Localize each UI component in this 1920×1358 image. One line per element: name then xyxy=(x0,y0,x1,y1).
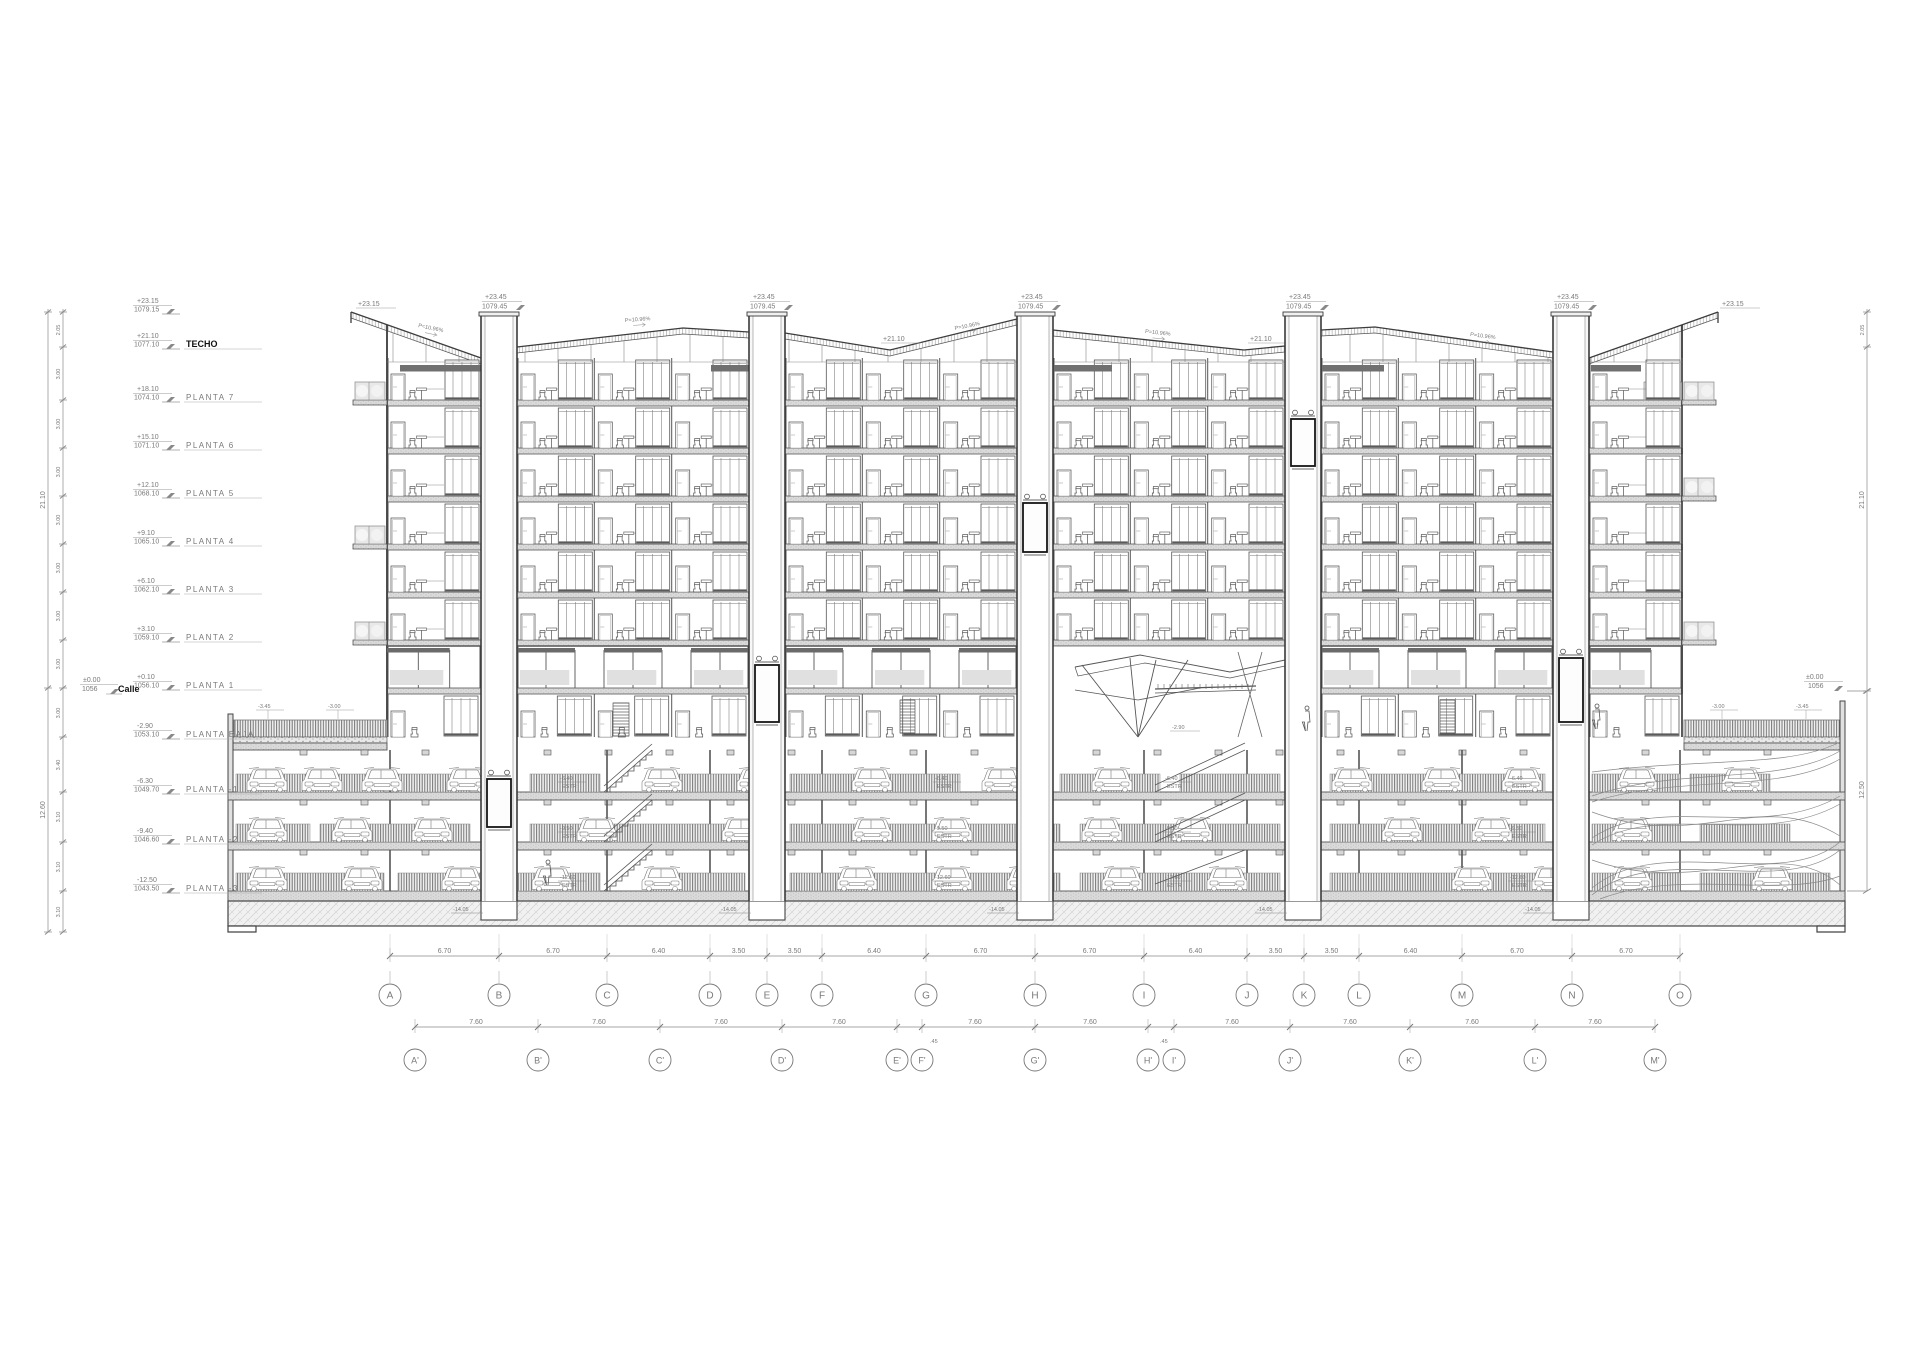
svg-text:+21.10: +21.10 xyxy=(883,336,905,343)
svg-text:3.00: 3.00 xyxy=(56,467,62,478)
svg-text:N: N xyxy=(1568,991,1575,1002)
svg-text:PLANTA -3: PLANTA -3 xyxy=(186,884,239,893)
svg-text:-12.60: -12.60 xyxy=(560,875,576,881)
svg-text:Calle: Calle xyxy=(118,684,140,694)
svg-text:1079.15: 1079.15 xyxy=(134,307,159,314)
svg-text:PLANTA 6: PLANTA 6 xyxy=(186,441,235,450)
svg-text:3.10: 3.10 xyxy=(56,862,62,873)
svg-text:ESTR: ESTR xyxy=(1512,834,1527,840)
svg-text:-14.05: -14.05 xyxy=(1525,907,1541,913)
svg-text:-12.50: -12.50 xyxy=(137,877,157,884)
svg-text:6.70: 6.70 xyxy=(974,948,988,955)
svg-text:1079.45: 1079.45 xyxy=(750,304,775,311)
svg-text:+23.45: +23.45 xyxy=(1557,294,1579,301)
svg-text:L': L' xyxy=(1532,1056,1539,1066)
svg-text:G': G' xyxy=(1031,1056,1040,1066)
svg-text:M': M' xyxy=(1650,1056,1659,1066)
svg-text:-12.60: -12.60 xyxy=(935,875,951,881)
svg-text:K: K xyxy=(1301,991,1308,1002)
svg-text:1043.50: 1043.50 xyxy=(134,886,159,893)
svg-text:F: F xyxy=(819,991,825,1002)
svg-text:-3.45: -3.45 xyxy=(1796,704,1809,710)
svg-text:1068.10: 1068.10 xyxy=(134,491,159,498)
svg-text:7.60: 7.60 xyxy=(1465,1019,1479,1026)
svg-text:E': E' xyxy=(893,1056,901,1066)
svg-text:PLANTA BAJA: PLANTA BAJA xyxy=(186,730,255,739)
svg-text:1079.45: 1079.45 xyxy=(1554,304,1579,311)
svg-text:7.60: 7.60 xyxy=(1083,1019,1097,1026)
svg-text:1056: 1056 xyxy=(82,686,98,693)
svg-text:-12.60: -12.60 xyxy=(1510,875,1526,881)
svg-text:TECHO: TECHO xyxy=(186,339,218,349)
svg-text:+23.45: +23.45 xyxy=(485,294,507,301)
svg-text:1056: 1056 xyxy=(1808,683,1824,690)
svg-text:ESTR: ESTR xyxy=(1512,784,1527,790)
svg-text:I: I xyxy=(1143,991,1146,1002)
svg-text:3.50: 3.50 xyxy=(1325,948,1339,955)
svg-text:+23.45: +23.45 xyxy=(1021,294,1043,301)
svg-text:-6.40: -6.40 xyxy=(560,776,573,782)
svg-text:L: L xyxy=(1356,991,1362,1002)
svg-text:3.00: 3.00 xyxy=(56,611,62,622)
svg-text:A': A' xyxy=(411,1056,419,1066)
svg-text:6.40: 6.40 xyxy=(867,948,881,955)
svg-text:M: M xyxy=(1458,991,1466,1002)
svg-text:1062.10: 1062.10 xyxy=(134,587,159,594)
svg-text:+6.10: +6.10 xyxy=(137,578,155,585)
svg-text:2.05: 2.05 xyxy=(56,325,62,336)
svg-text:6.40: 6.40 xyxy=(1404,948,1418,955)
svg-text:+0.10: +0.10 xyxy=(137,674,155,681)
svg-text:PLANTA 4: PLANTA 4 xyxy=(186,537,235,546)
svg-text:3.00: 3.00 xyxy=(56,708,62,719)
svg-text:+23.15: +23.15 xyxy=(137,298,159,305)
svg-text:6.70: 6.70 xyxy=(1619,948,1633,955)
svg-text:+23.45: +23.45 xyxy=(1289,294,1311,301)
svg-text:ESTR: ESTR xyxy=(1512,883,1527,889)
svg-text:J: J xyxy=(1245,991,1250,1002)
svg-text:21.10: 21.10 xyxy=(40,491,47,509)
svg-text:I': I' xyxy=(1172,1056,1177,1066)
svg-text:-6.40: -6.40 xyxy=(1510,776,1523,782)
svg-text:1059.10: 1059.10 xyxy=(134,635,159,642)
svg-text:F': F' xyxy=(918,1056,925,1066)
svg-text:-14.05: -14.05 xyxy=(989,907,1005,913)
svg-text:PLANTA 3: PLANTA 3 xyxy=(186,585,235,594)
svg-text:-6.40: -6.40 xyxy=(935,776,948,782)
svg-text:6.70: 6.70 xyxy=(1083,948,1097,955)
svg-text:-3.00: -3.00 xyxy=(1712,704,1725,710)
svg-text:B: B xyxy=(496,991,503,1002)
svg-text:1074.10: 1074.10 xyxy=(134,395,159,402)
svg-text:B': B' xyxy=(534,1056,542,1066)
svg-text:-9.50: -9.50 xyxy=(1510,826,1523,832)
svg-text:A: A xyxy=(387,991,394,1002)
svg-text:O: O xyxy=(1676,991,1684,1002)
svg-text:12.50: 12.50 xyxy=(1859,781,1866,799)
svg-text:3.10: 3.10 xyxy=(56,907,62,918)
svg-text:ESTR: ESTR xyxy=(1167,883,1182,889)
svg-text:+15.10: +15.10 xyxy=(137,434,159,441)
svg-text:G: G xyxy=(922,991,930,1002)
svg-text:-6.40: -6.40 xyxy=(1165,776,1178,782)
svg-text:1049.70: 1049.70 xyxy=(134,787,159,794)
svg-text:6.70: 6.70 xyxy=(438,948,452,955)
svg-text:3.00: 3.00 xyxy=(56,369,62,380)
svg-text:+9.10: +9.10 xyxy=(137,530,155,537)
svg-text:PLANTA -2: PLANTA -2 xyxy=(186,835,239,844)
svg-text:3.50: 3.50 xyxy=(788,948,802,955)
svg-text:-3.45: -3.45 xyxy=(258,704,271,710)
svg-text:-9.40: -9.40 xyxy=(137,828,153,835)
svg-text:+21.10: +21.10 xyxy=(137,333,159,340)
svg-text:PLANTA -1: PLANTA -1 xyxy=(186,785,239,794)
svg-text:-3.00: -3.00 xyxy=(328,704,341,710)
svg-text:ESTR: ESTR xyxy=(562,883,577,889)
svg-text:+12.10: +12.10 xyxy=(137,482,159,489)
svg-text:3.50: 3.50 xyxy=(732,948,746,955)
svg-text:7.60: 7.60 xyxy=(1343,1019,1357,1026)
svg-text:1065.10: 1065.10 xyxy=(134,539,159,546)
svg-text:±0.00: ±0.00 xyxy=(83,677,101,684)
svg-text:-12.60: -12.60 xyxy=(1165,875,1181,881)
svg-text:+23.45: +23.45 xyxy=(753,294,775,301)
svg-text:2.05: 2.05 xyxy=(1860,325,1866,336)
svg-text:ESTR: ESTR xyxy=(937,784,952,790)
svg-text:ESTR: ESTR xyxy=(1167,784,1182,790)
svg-text:J': J' xyxy=(1287,1056,1294,1066)
svg-text:7.60: 7.60 xyxy=(968,1019,982,1026)
svg-text:1071.10: 1071.10 xyxy=(134,443,159,450)
svg-text:3.10: 3.10 xyxy=(56,812,62,823)
svg-text:6.40: 6.40 xyxy=(1189,948,1203,955)
svg-text:7.60: 7.60 xyxy=(469,1019,483,1026)
svg-text:1079.45: 1079.45 xyxy=(1286,304,1311,311)
svg-text:7.60: 7.60 xyxy=(832,1019,846,1026)
svg-text:3.00: 3.00 xyxy=(56,659,62,670)
svg-text:+21.10: +21.10 xyxy=(1250,336,1272,343)
svg-text:12.60: 12.60 xyxy=(40,801,47,819)
svg-text:+3.10: +3.10 xyxy=(137,626,155,633)
svg-text:1077.10: 1077.10 xyxy=(134,342,159,349)
svg-text:PLANTA 5: PLANTA 5 xyxy=(186,489,235,498)
svg-text:+18.10: +18.10 xyxy=(137,386,159,393)
svg-text:PLANTA 7: PLANTA 7 xyxy=(186,393,235,402)
svg-text:6.70: 6.70 xyxy=(546,948,560,955)
svg-text:-9.50: -9.50 xyxy=(560,826,573,832)
svg-text:1079.45: 1079.45 xyxy=(482,304,507,311)
svg-text:.45: .45 xyxy=(930,1039,938,1045)
svg-text:21.10: 21.10 xyxy=(1859,491,1866,509)
svg-text:3.40: 3.40 xyxy=(56,760,62,771)
svg-text:-6.30: -6.30 xyxy=(137,778,153,785)
svg-text:ESTR: ESTR xyxy=(937,834,952,840)
svg-text:D: D xyxy=(706,991,713,1002)
svg-text:7.60: 7.60 xyxy=(592,1019,606,1026)
svg-text:K': K' xyxy=(1406,1056,1414,1066)
svg-text:7.60: 7.60 xyxy=(1225,1019,1239,1026)
svg-text:-14.05: -14.05 xyxy=(1257,907,1273,913)
svg-text:ESTR: ESTR xyxy=(562,834,577,840)
svg-text:1046.60: 1046.60 xyxy=(134,837,159,844)
svg-text:D': D' xyxy=(778,1056,786,1066)
svg-text:6.70: 6.70 xyxy=(1510,948,1524,955)
svg-text:1079.45: 1079.45 xyxy=(1018,304,1043,311)
svg-text:H': H' xyxy=(1144,1056,1152,1066)
svg-text:-9.50: -9.50 xyxy=(1165,826,1178,832)
svg-text:PLANTA 1: PLANTA 1 xyxy=(186,681,235,690)
svg-text:E: E xyxy=(764,991,771,1002)
svg-text:-2.90: -2.90 xyxy=(1172,725,1185,731)
svg-text:ESTR: ESTR xyxy=(1167,834,1182,840)
svg-text:PLANTA 2: PLANTA 2 xyxy=(186,633,235,642)
svg-text:7.60: 7.60 xyxy=(1588,1019,1602,1026)
svg-text:+23.15: +23.15 xyxy=(358,301,380,308)
svg-text:±0.00: ±0.00 xyxy=(1806,674,1824,681)
svg-text:3.00: 3.00 xyxy=(56,515,62,526)
svg-text:7.60: 7.60 xyxy=(714,1019,728,1026)
svg-text:-9.50: -9.50 xyxy=(935,826,948,832)
svg-text:3.00: 3.00 xyxy=(56,563,62,574)
svg-text:3.50: 3.50 xyxy=(1269,948,1283,955)
svg-text:ESTR: ESTR xyxy=(562,784,577,790)
svg-text:+23.15: +23.15 xyxy=(1722,301,1744,308)
svg-text:-14.05: -14.05 xyxy=(453,907,469,913)
svg-text:6.40: 6.40 xyxy=(652,948,666,955)
svg-text:C: C xyxy=(603,991,610,1002)
svg-text:-2.90: -2.90 xyxy=(137,723,153,730)
svg-text:C': C' xyxy=(656,1056,664,1066)
svg-text:-14.05: -14.05 xyxy=(721,907,737,913)
svg-text:ESTR: ESTR xyxy=(937,883,952,889)
svg-text:1053.10: 1053.10 xyxy=(134,732,159,739)
svg-text:H: H xyxy=(1031,991,1038,1002)
svg-text:3.00: 3.00 xyxy=(56,419,62,430)
svg-text:.45: .45 xyxy=(1160,1039,1168,1045)
